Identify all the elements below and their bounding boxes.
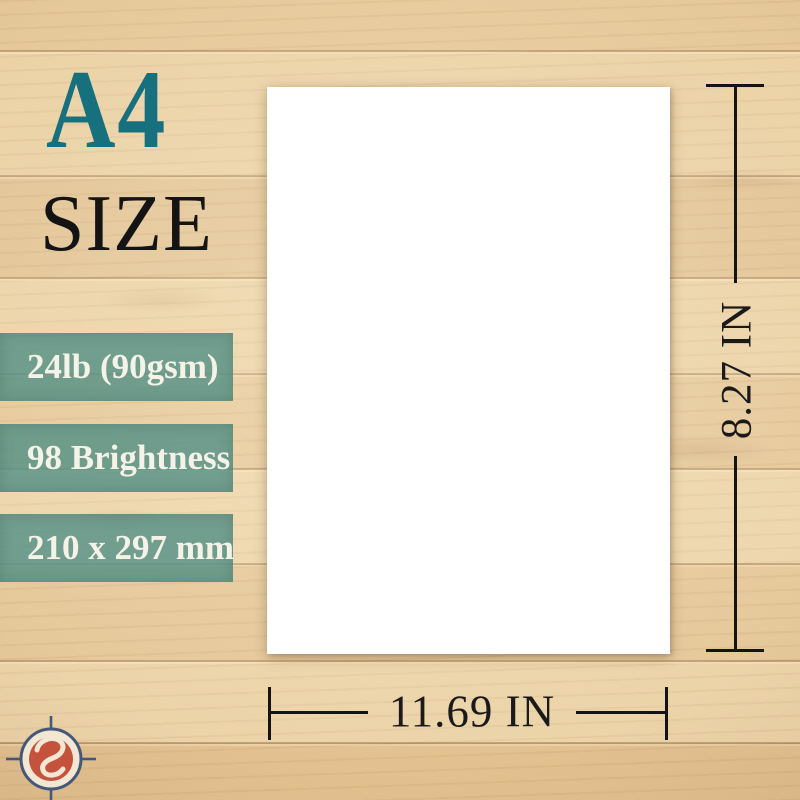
s-crosshair-logo-icon bbox=[2, 714, 102, 800]
height-dimension-cap-bottom bbox=[706, 649, 764, 652]
spec-banner-weight: 24lb (90gsm) bbox=[0, 333, 233, 401]
spec-label-weight: 24lb (90gsm) bbox=[0, 347, 219, 387]
width-dimension-cap-right bbox=[665, 687, 668, 740]
size-word-heading: SIZE bbox=[40, 184, 213, 264]
spec-banner-brightness: 98 Brightness bbox=[0, 424, 233, 492]
width-dimension-line-left bbox=[268, 711, 368, 714]
width-dimension-line-right bbox=[576, 711, 668, 714]
spec-banner-size-mm: 210 x 297 mm bbox=[0, 514, 233, 582]
height-dimension-line-lower bbox=[734, 456, 737, 652]
height-dimension-line-upper bbox=[734, 84, 737, 283]
size-code-heading: A4 bbox=[46, 54, 167, 166]
spec-label-brightness: 98 Brightness bbox=[0, 438, 230, 478]
a4-paper-sheet bbox=[267, 87, 670, 654]
height-dimension-label: 8.27 IN bbox=[716, 301, 759, 439]
spec-label-size-mm: 210 x 297 mm bbox=[0, 528, 234, 568]
width-dimension-label: 11.69 IN bbox=[389, 690, 555, 735]
product-image: A4 SIZE 24lb (90gsm) 98 Brightness 210 x… bbox=[0, 0, 800, 800]
